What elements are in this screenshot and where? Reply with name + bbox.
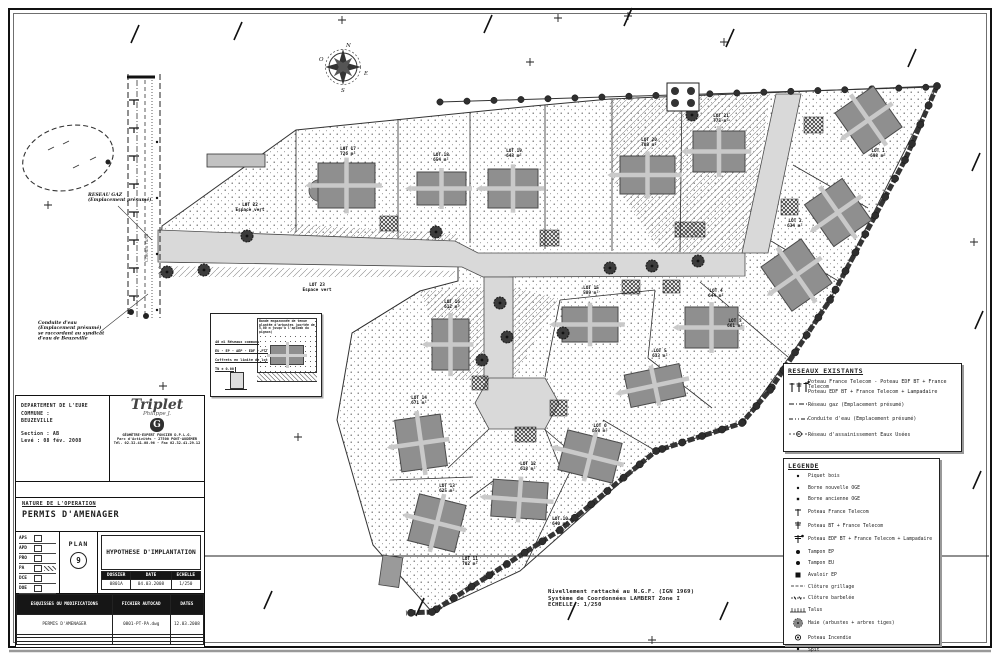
reseaux-item-label: Réseau gaz (Emplacement présumé) xyxy=(808,403,904,408)
legende-item: Talus xyxy=(788,606,935,616)
mods-cell: 12.03.2008 xyxy=(170,615,203,635)
mods-cell: 0801-PT-PA.dwg xyxy=(112,615,170,635)
driveway xyxy=(622,280,640,294)
lot-label: LOT 18654 m² xyxy=(433,152,449,163)
water-line-icon xyxy=(788,415,808,425)
circle-filled-icon xyxy=(788,559,808,569)
pole-bt-icon xyxy=(788,520,808,532)
annotation-label: RESEAU GAZ(Emplacement présumé) xyxy=(87,192,151,203)
transformer xyxy=(207,154,265,167)
legende-item-label: Poteau Incendie xyxy=(808,636,851,641)
phase-row-aps: APS xyxy=(19,534,56,544)
square-small-icon xyxy=(788,495,808,505)
legende-item: Poteau EDF BT + France Telecom + Lampada… xyxy=(788,534,935,546)
pole-edf-icon xyxy=(788,534,808,546)
lot-label: LOT 11702 m² xyxy=(462,556,478,567)
hydrant-icon xyxy=(788,633,808,644)
dot-icon xyxy=(788,472,808,482)
info-value-cell: 04.03.2008 xyxy=(131,580,171,590)
existing-street: Chemin rural xyxy=(127,74,160,319)
legende-item: Haie (arbustes + arbres tiges) xyxy=(788,617,935,631)
commune-name: BEUZEVILLE xyxy=(21,418,104,426)
lot-label: LOT 20708 m² xyxy=(641,137,657,148)
legende-item-label: Borne ancienne OGE xyxy=(808,497,860,502)
fold-mark-icon xyxy=(726,29,734,47)
driveway xyxy=(804,117,823,133)
lot-label: LOT 5633 m² xyxy=(652,348,668,359)
legende-item: Poteau Incendie xyxy=(788,633,935,644)
survey-cross-icon xyxy=(294,433,302,441)
levelling-note-line: Système de Coordonnées LAMBERT Zone I xyxy=(548,596,694,603)
phase-row-pa: PA xyxy=(19,564,56,574)
legende-item-label: Borne nouvelle OGE xyxy=(808,486,860,491)
driveway xyxy=(550,400,567,416)
firm-badge-icon: G xyxy=(150,418,164,432)
inset-label: EU - EP - AEP - EDF - PTT xyxy=(215,349,268,354)
fold-mark-icon xyxy=(484,15,492,33)
haie-icon xyxy=(788,617,808,631)
legende-item-label: Piquet bois xyxy=(808,474,840,479)
mods-cell xyxy=(17,641,113,644)
reseaux-title: RESEAUX EXISTANTS xyxy=(788,367,957,375)
square-filled-icon xyxy=(788,571,808,581)
driveway xyxy=(781,199,798,215)
fold-mark-icon xyxy=(720,602,728,620)
info-value-cell: 1/250 xyxy=(171,580,200,590)
levelling-note-line: Nivellement rattaché au N.G.F. (IGN 1969… xyxy=(548,589,694,596)
circle-filled-icon xyxy=(788,548,808,558)
lot-label: LOT 3661 m² xyxy=(727,318,743,329)
plan-label: PLAN xyxy=(60,540,97,548)
phase-row-pro: PRO xyxy=(19,554,56,564)
legende-item-label: Clôture barbelée xyxy=(808,596,854,601)
legende-item: Clôture barbelée xyxy=(788,594,935,604)
compass-letter: S xyxy=(341,88,345,94)
levelling-note: Nivellement rattaché au N.G.F. (IGN 1969… xyxy=(548,589,694,609)
inset-label: Coffrets en limite de lot xyxy=(215,358,268,363)
driveway xyxy=(472,376,488,390)
mods-cell: PERMIS D'AMENAGER xyxy=(17,615,113,635)
detail-inset: Bande engazonnée de tenue plantée d'arbu… xyxy=(210,313,322,397)
legende-item-label: Avaloir EP xyxy=(808,573,837,578)
legende-item: Piquet bois xyxy=(788,472,935,482)
reseaux-item: Poteau France Telecom - Poteau EDF BT + … xyxy=(788,380,957,396)
annotation-label: Conduite d'eau(Emplacement présumé)se ra… xyxy=(38,320,105,342)
annotations: RESEAU GAZ(Emplacement présumé)Conduite … xyxy=(38,192,152,342)
inset-label: TN ± 0.00 xyxy=(215,367,234,372)
mods-header-cell: FICHIER AUTOCAD xyxy=(112,595,170,615)
pole-ft-icon xyxy=(788,507,808,519)
legende-item-label: Haie (arbustes + arbres tiges) xyxy=(808,621,895,626)
fence-grillage-icon xyxy=(788,582,808,592)
legende-item-label: Clôture grillage xyxy=(808,585,854,590)
plan-number-cell: PLAN 9 xyxy=(60,532,98,593)
plan-sheet: Chemin rural LOT 17726 m²LOT 18654 m²LOT… xyxy=(0,0,1000,656)
legende-item: Poteau BT + France Telecom xyxy=(788,520,935,532)
survey-cross-icon xyxy=(44,201,52,209)
legende-item-label: Poteau BT + France Telecom xyxy=(808,524,883,529)
fold-mark-icon xyxy=(624,8,632,26)
fence-barbele-icon xyxy=(788,594,808,604)
lot-label: LOT 4644 m² xyxy=(708,288,724,299)
legende-item: Poteau France Telecom xyxy=(788,507,935,519)
lot-label: LOT 12618 m² xyxy=(520,461,536,472)
levelling-note-line: ECHELLE : 1/250 xyxy=(548,602,694,609)
poles-icon xyxy=(788,380,808,395)
driveway xyxy=(675,222,705,237)
legende-box: LEGENDE Piquet boisBorne nouvelle OGEBor… xyxy=(783,458,940,645)
survey-cross-icon xyxy=(159,382,167,390)
legende-item: Tampon EP xyxy=(788,548,935,558)
reseaux-item-label: Réseau d'assainissement Eaux Usées xyxy=(808,433,910,438)
driveway xyxy=(515,427,536,442)
reseaux-existants-legend: RESEAUX EXISTANTS Poteau France Telecom … xyxy=(783,363,962,452)
fold-mark-icon xyxy=(908,49,916,67)
legende-item: Borne nouvelle OGE xyxy=(788,484,935,494)
info-header-cell: DOSSIER xyxy=(102,572,131,580)
dossier-info-table: DOSSIERDATEECHELLE0801A04.03.20081/250 xyxy=(101,571,201,590)
operation-nature: NATURE DE L'OPERATION PERMIS D'AMENAGER xyxy=(16,498,204,532)
compass-letter: O xyxy=(319,57,324,63)
lot-label: LOT 23Espace vert xyxy=(302,282,331,293)
title-block-identification: DEPARTEMENT DE L'EURE COMMUNE : BEUZEVIL… xyxy=(16,396,110,481)
mods-cell xyxy=(170,641,203,644)
driveway xyxy=(663,280,680,293)
lot-label: LOT 2634 m² xyxy=(787,218,803,229)
driveway xyxy=(540,230,559,246)
lot-label: LOT 6659 m² xyxy=(592,423,608,434)
compass-rose-icon: NESO xyxy=(319,43,368,94)
legende-item-label: Poteau France Telecom xyxy=(808,510,869,515)
compass-letter: E xyxy=(363,71,368,77)
compass-letter: N xyxy=(345,43,351,49)
lot-label: LOT 16612 m² xyxy=(444,299,460,310)
inset-caption: Bande engazonnée de tenue plantée d'arbu… xyxy=(259,320,315,334)
svg-text:Chemin rural: Chemin rural xyxy=(144,233,149,262)
talus-icon xyxy=(788,606,808,616)
mods-header-cell: ESQUISSES OU MODIFICATIONS xyxy=(17,595,113,615)
fold-mark-icon xyxy=(131,25,139,43)
survey-cross-icon xyxy=(554,14,562,22)
lot-label: LOT 1698 m² xyxy=(870,148,886,159)
lot-label: LOT 10640 m² xyxy=(552,516,568,527)
phase-row-dce: DCE xyxy=(19,574,56,584)
reseaux-item-label: Poteau France Telecom - Poteau EDF BT + … xyxy=(808,380,957,396)
legende-item-label: Tampon EP xyxy=(808,550,834,555)
legende-item: Spit xyxy=(788,645,935,655)
modifications-table: ESQUISSES OU MODIFICATIONSFICHIER AUTOCA… xyxy=(16,594,204,645)
legende-item-label: Talus xyxy=(808,608,822,613)
firm-subname: Philippe J. xyxy=(110,412,204,417)
legende-title: LEGENDE xyxy=(788,462,935,470)
nature-value: PERMIS D'AMENAGER xyxy=(22,510,198,520)
pylon-icon xyxy=(667,83,699,111)
inset-hatch-strip xyxy=(257,372,317,381)
section-label: Section : AB xyxy=(21,431,104,439)
legende-item: Tampon EU xyxy=(788,559,935,569)
leve-label: Levé : 08 fév. 2008 xyxy=(21,438,104,446)
phase-row-apd: APD xyxy=(19,544,56,554)
sewer-line-icon xyxy=(788,429,808,441)
legende-item-label: Poteau EDF BT + France Telecom + Lampada… xyxy=(808,537,932,542)
lot-label: LOT 21775 m² xyxy=(713,113,729,124)
legende-item-label: Tampon EU xyxy=(808,561,834,566)
fold-mark-icon xyxy=(973,471,981,489)
fold-mark-icon xyxy=(264,591,272,609)
mods-cell xyxy=(112,641,170,644)
lot-label: LOT 19643 m² xyxy=(506,148,522,159)
survey-cross-icon xyxy=(970,238,978,246)
nature-label: NATURE DE L'OPERATION xyxy=(22,501,198,507)
info-header-cell: ECHELLE xyxy=(171,572,200,580)
info-value-cell: 0801A xyxy=(102,580,131,590)
survey-cross-icon xyxy=(526,58,534,66)
plan-number: 9 xyxy=(70,552,87,569)
inset-label: 40 ml Réseaux communs xyxy=(215,340,259,345)
fold-mark-icon xyxy=(234,22,242,40)
phase-checklist: APSAPDPROPADCEDOE xyxy=(16,532,60,593)
info-header-cell: DATE xyxy=(131,572,171,580)
reseaux-item: Conduite d'eau (Emplacement présumé) xyxy=(788,415,957,425)
department-label: DEPARTEMENT DE L'EURE xyxy=(21,403,104,411)
fold-mark-icon xyxy=(975,311,983,329)
dot-icon xyxy=(788,645,808,655)
lot-label: LOT 17726 m² xyxy=(340,146,356,157)
pond xyxy=(16,116,121,200)
title-block: DEPARTEMENT DE L'EURE COMMUNE : BEUZEVIL… xyxy=(15,395,205,648)
legende-item-label: Spit xyxy=(808,648,820,653)
lot-label: LOT 15589 m² xyxy=(583,285,599,296)
gas-line-icon xyxy=(788,400,808,410)
survey-cross-icon xyxy=(338,16,346,24)
phase-row-doe: DOE xyxy=(19,584,56,594)
commune-label: COMMUNE : xyxy=(21,411,104,419)
lot-label: LOT 13625 m² xyxy=(439,483,455,494)
reseaux-item-label: Conduite d'eau (Emplacement présumé) xyxy=(808,417,916,422)
fold-mark-icon xyxy=(972,153,980,171)
driveway xyxy=(380,216,398,231)
firm-address-line: Tél. 02.32.41.08.96 - Fax 02.32.41.29.12 xyxy=(110,441,204,445)
document-title: HYPOTHESE D'IMPLANTATION xyxy=(101,535,201,570)
mods-header-cell: DATES xyxy=(170,595,203,615)
outbuilding xyxy=(379,555,403,587)
dot-icon xyxy=(788,484,808,494)
reseaux-item: Réseau gaz (Emplacement présumé) xyxy=(788,400,957,410)
legende-item: Avaloir EP xyxy=(788,571,935,581)
legende-item: Borne ancienne OGE xyxy=(788,495,935,505)
inset-house xyxy=(270,345,304,365)
surveyor-logo: Triplet Philippe J. G GÉOMÈTRE-EXPERT FO… xyxy=(110,396,204,481)
legende-item: Clôture grillage xyxy=(788,582,935,592)
lot-label: LOT 14671 m² xyxy=(411,395,427,406)
reseaux-item: Réseau d'assainissement Eaux Usées xyxy=(788,429,957,441)
